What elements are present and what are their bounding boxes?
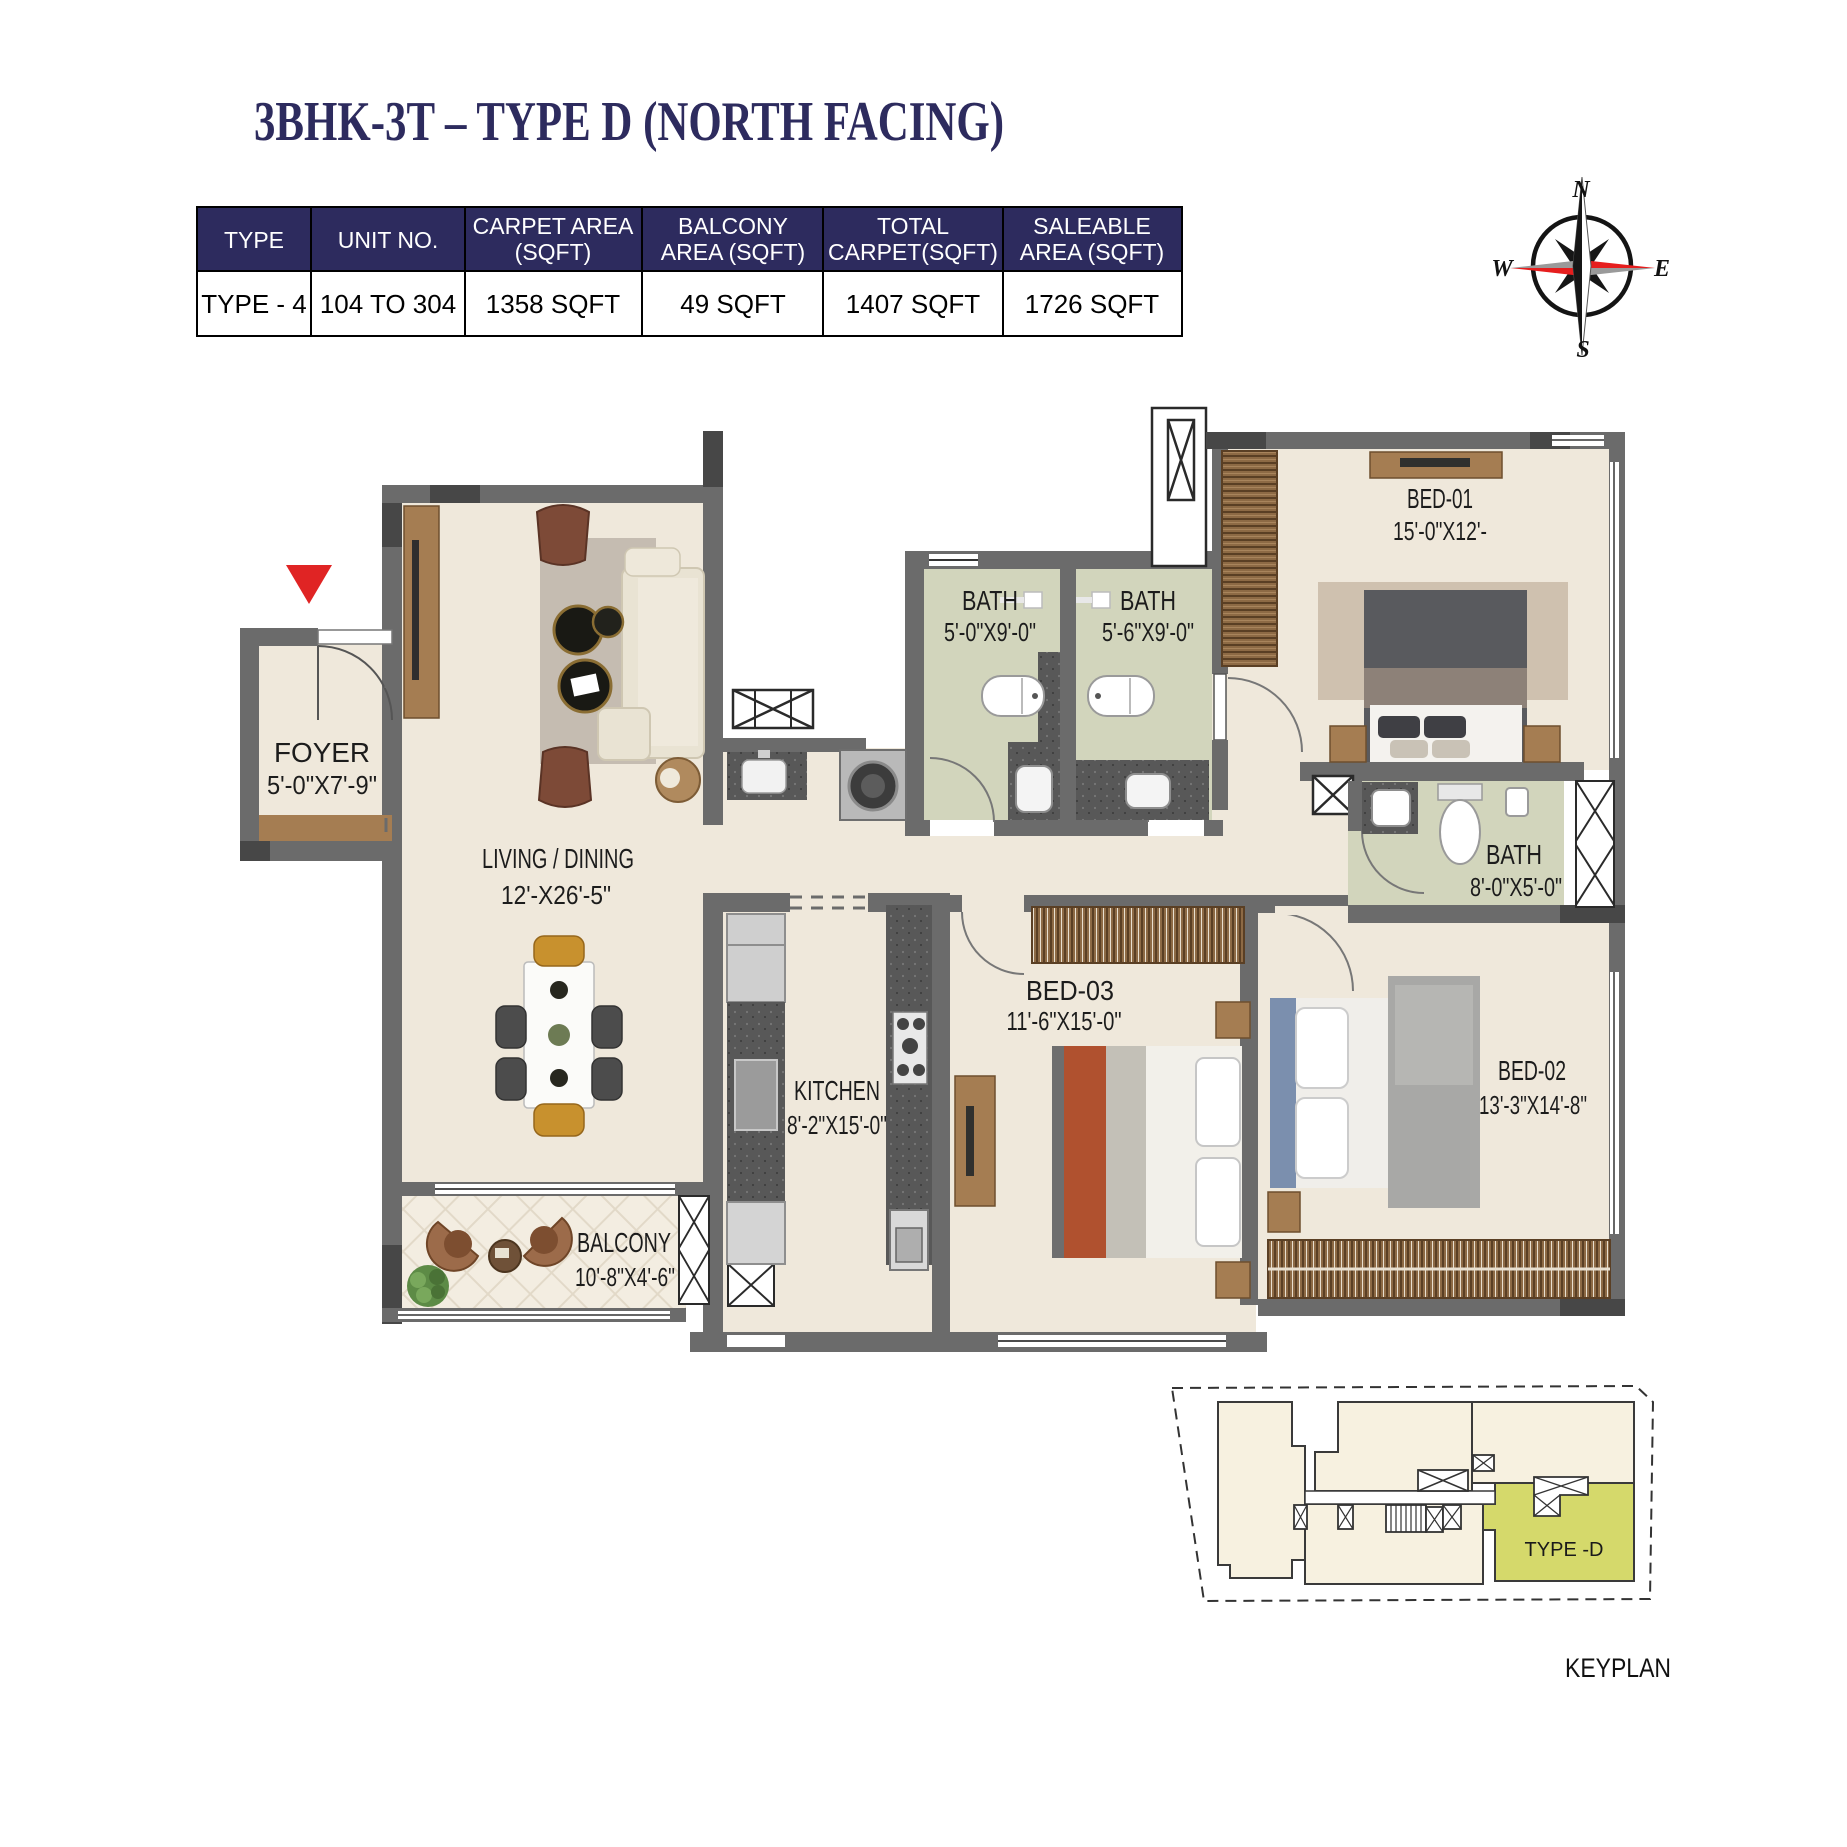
svg-text:(SQFT): (SQFT): [515, 239, 592, 265]
svg-text:BATH: BATH: [962, 585, 1018, 616]
svg-text:3BHK-3T – TYPE D (NORTH FACING: 3BHK-3T – TYPE D (NORTH FACING): [254, 91, 1004, 153]
svg-text:N: N: [1571, 177, 1591, 203]
svg-text:FOYER: FOYER: [274, 737, 370, 768]
svg-text:BALCONY: BALCONY: [678, 213, 788, 239]
svg-text:AREA (SQFT): AREA (SQFT): [1020, 239, 1164, 265]
svg-text:BATH: BATH: [1486, 839, 1542, 870]
svg-text:1358 SQFT: 1358 SQFT: [486, 289, 621, 319]
svg-text:12'-X26'-5": 12'-X26'-5": [501, 880, 611, 910]
svg-text:S: S: [1576, 337, 1589, 363]
svg-text:KITCHEN: KITCHEN: [794, 1075, 880, 1106]
svg-text:TYPE - 4: TYPE - 4: [201, 289, 306, 319]
svg-text:5'-6"X9'-0": 5'-6"X9'-0": [1102, 617, 1194, 647]
svg-text:13'-3"X14'-8": 13'-3"X14'-8": [1479, 1090, 1587, 1120]
svg-text:CARPET AREA: CARPET AREA: [473, 213, 634, 239]
svg-text:8'-2"X15'-0": 8'-2"X15'-0": [787, 1110, 887, 1140]
svg-text:SALEABLE: SALEABLE: [1033, 213, 1151, 239]
svg-text:AREA (SQFT): AREA (SQFT): [661, 239, 805, 265]
svg-text:BED-01: BED-01: [1407, 483, 1473, 514]
svg-text:KEYPLAN: KEYPLAN: [1565, 1653, 1671, 1683]
svg-text:5'-0"X9'-0": 5'-0"X9'-0": [944, 617, 1036, 647]
svg-text:CARPET(SQFT): CARPET(SQFT): [828, 239, 998, 265]
svg-text:8'-0"X5'-0": 8'-0"X5'-0": [1470, 872, 1562, 902]
svg-text:10'-8"X4'-6": 10'-8"X4'-6": [575, 1262, 675, 1292]
svg-text:1407 SQFT: 1407 SQFT: [846, 289, 981, 319]
svg-text:BALCONY: BALCONY: [577, 1227, 671, 1258]
svg-text:1726 SQFT: 1726 SQFT: [1025, 289, 1160, 319]
svg-text:15'-0"X12'-: 15'-0"X12'-: [1393, 516, 1487, 546]
svg-text:104 TO 304: 104 TO 304: [320, 289, 456, 319]
svg-text:BED-03: BED-03: [1026, 975, 1114, 1006]
svg-text:E: E: [1653, 256, 1670, 282]
svg-text:LIVING / DINING: LIVING / DINING: [482, 843, 634, 874]
svg-text:TYPE -D: TYPE -D: [1525, 1539, 1604, 1561]
svg-text:BATH: BATH: [1120, 585, 1176, 616]
svg-text:UNIT NO.: UNIT NO.: [338, 227, 439, 253]
svg-text:W: W: [1491, 256, 1514, 282]
svg-text:11'-6"X15'-0": 11'-6"X15'-0": [1007, 1006, 1122, 1036]
svg-text:49 SQFT: 49 SQFT: [680, 289, 786, 319]
svg-text:5'-0"X7'-9": 5'-0"X7'-9": [267, 770, 377, 800]
svg-text:TOTAL: TOTAL: [877, 213, 949, 239]
svg-text:TYPE: TYPE: [224, 227, 284, 253]
svg-text:BED-02: BED-02: [1498, 1055, 1566, 1086]
